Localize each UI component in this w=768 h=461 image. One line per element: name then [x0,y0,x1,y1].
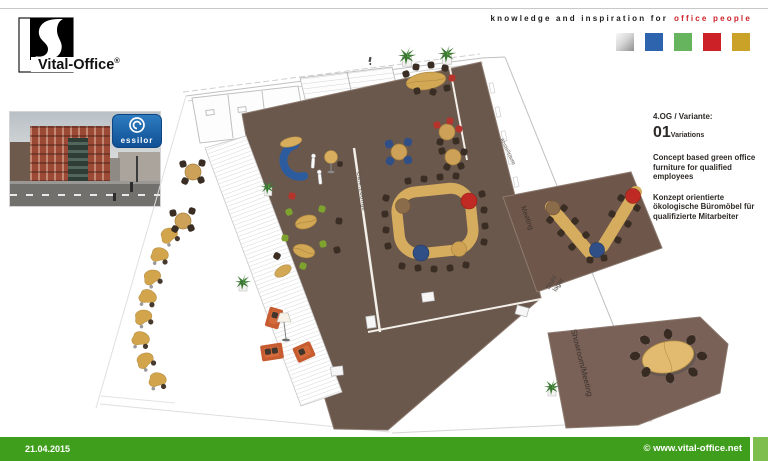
website-label: © www.vital-office.net [644,437,743,461]
plant [235,274,251,291]
terrace-bistro-tables [169,159,206,234]
floorplan-rendering: Meeting Stuhllager Cafe.Lounge Abstellra… [0,0,768,461]
sideboard [331,366,344,376]
date-label: 21.04.2015 [25,437,70,461]
sideboard [366,315,377,328]
showroom-meeting-room: Showroom/Meeting [544,317,728,428]
entrance-mark [368,57,371,65]
footer-accent [753,437,768,461]
footer-bar: 21.04.2015 © www.vital-office.net [0,437,768,461]
sideboard [421,292,434,303]
terrace-kidney-desks [130,225,182,391]
